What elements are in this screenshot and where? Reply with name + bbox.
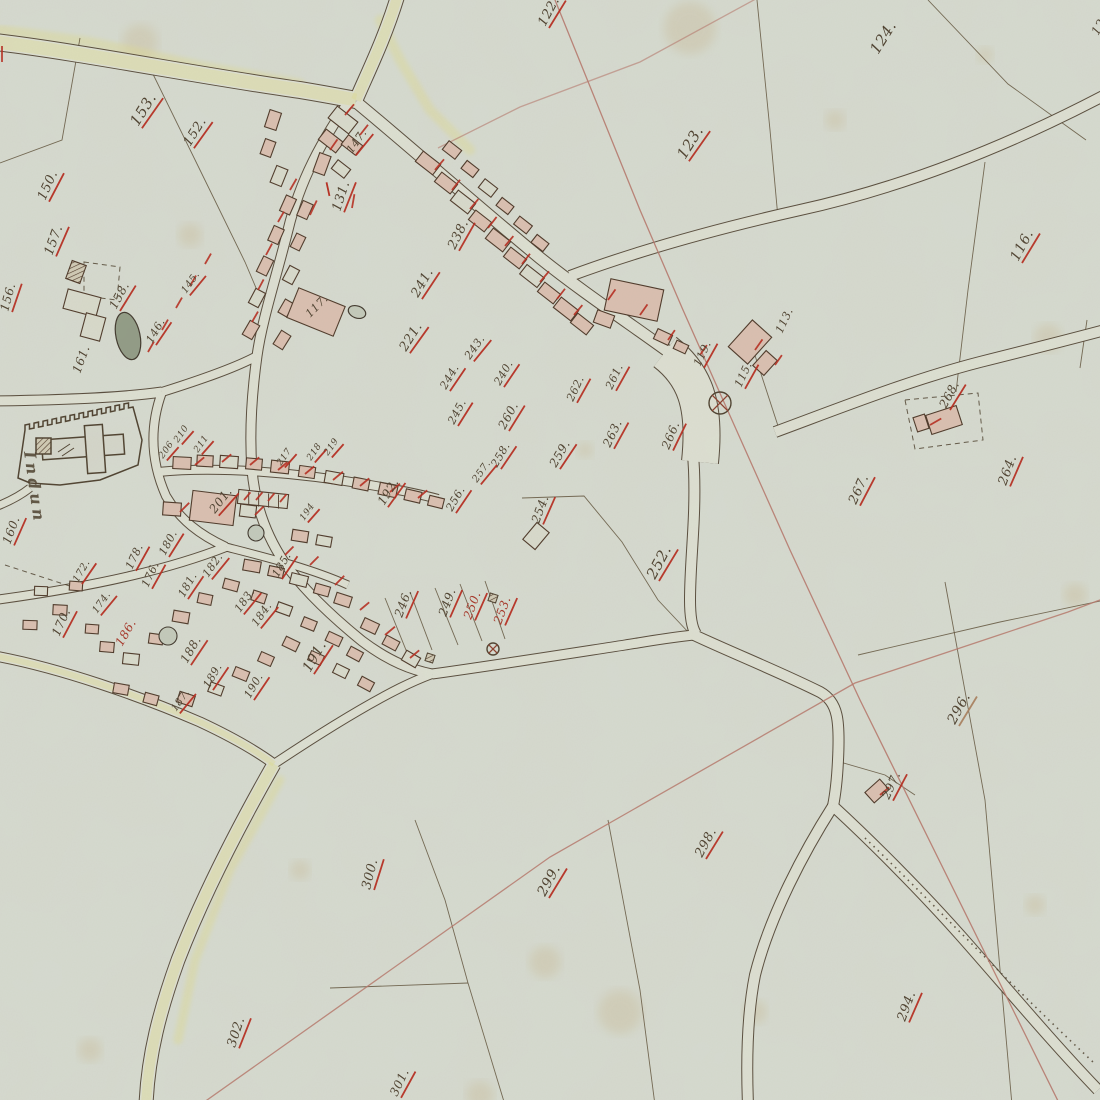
paper-grain-overlay bbox=[0, 0, 1100, 1100]
map-layers: 122.153.152.150.157.156.158.161.147.146.… bbox=[0, 0, 1100, 1100]
map-viewport: 122.153.152.150.157.156.158.161.147.146.… bbox=[0, 0, 1100, 1100]
cadastral-map: 122.153.152.150.157.156.158.161.147.146.… bbox=[0, 0, 1100, 1100]
